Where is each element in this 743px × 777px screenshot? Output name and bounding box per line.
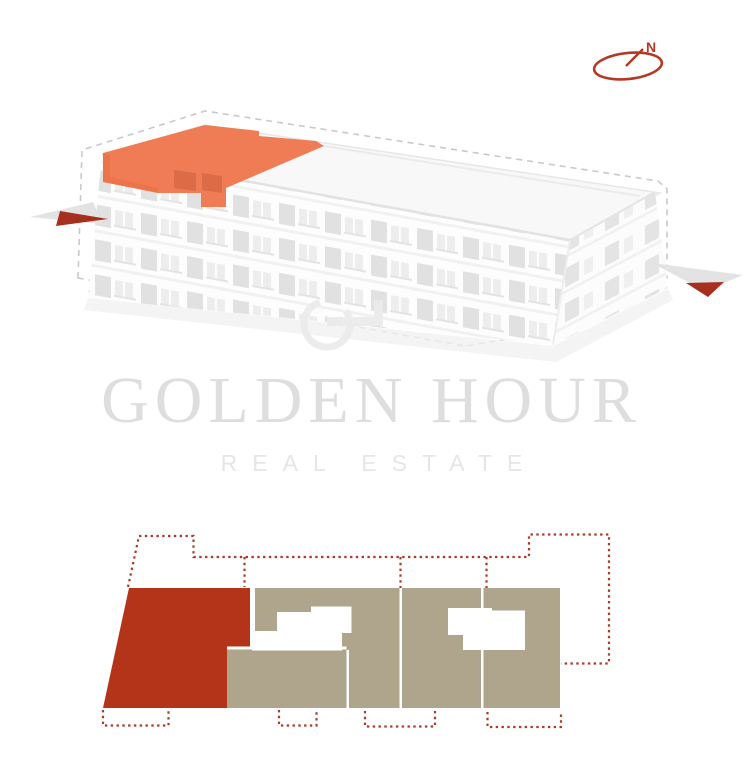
compass-north-label: N bbox=[646, 39, 656, 55]
unit-window-shade bbox=[202, 173, 222, 193]
unit-window-shade bbox=[174, 170, 196, 191]
floor-plan bbox=[103, 535, 609, 728]
balcony-outline-dotted bbox=[279, 710, 317, 726]
compass-north-icon: N bbox=[593, 39, 663, 82]
floor-plan-unit-2-lower[interactable] bbox=[227, 650, 347, 709]
building-3d-view bbox=[30, 111, 743, 362]
balcony-outline-dotted bbox=[488, 712, 562, 727]
balcony-outline-dotted bbox=[103, 710, 169, 726]
scene-canvas: N bbox=[0, 0, 743, 777]
entrance-arrow-left bbox=[30, 202, 108, 226]
real-estate-building-page: N GOLDEN HOUR REAL ESTATE bbox=[0, 0, 743, 777]
balcony-outline-dotted bbox=[365, 711, 435, 727]
